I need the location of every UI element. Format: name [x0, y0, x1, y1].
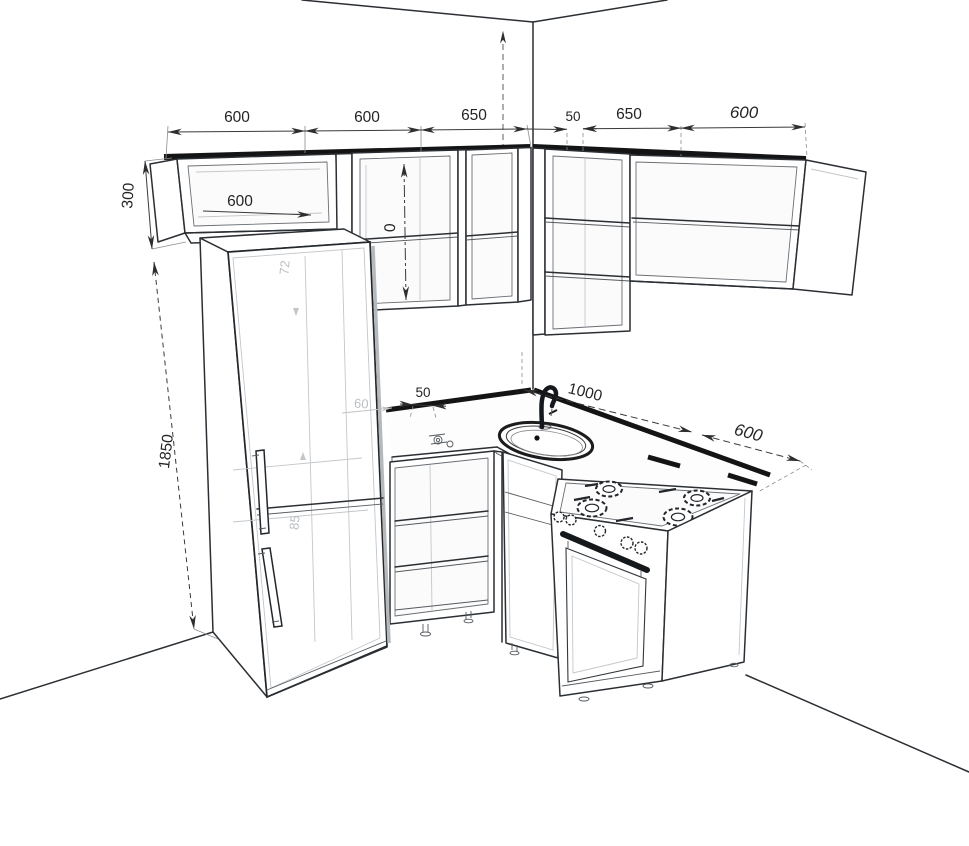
corner-filler-50: [533, 148, 545, 335]
floor-edge-left: [0, 632, 213, 699]
dim-650-2: 650: [616, 106, 642, 123]
hidden-dim-label-600-fragment: 60: [354, 396, 369, 412]
dim-600-stove: 600: [732, 420, 765, 446]
wall-cabinet-650-corner-open: [466, 148, 531, 306]
dim-300: 300: [119, 182, 138, 209]
floor-edge-right: [746, 675, 969, 772]
kitchen-technical-drawing: 72 60 85 600 600: [0, 0, 969, 846]
dim-600-right: 600: [730, 103, 759, 122]
gas-stove: [551, 457, 757, 701]
wall-cabinet-650-open-right: [545, 149, 630, 335]
burner: [684, 491, 710, 506]
dim-600-2: 600: [354, 109, 380, 126]
hidden-dim-label-720-fragment: 72: [276, 260, 292, 276]
upper-cabinets-right: [533, 147, 866, 335]
base-cabinet-open-left: [390, 451, 502, 642]
adjustable-foot: [421, 624, 431, 636]
burner: [578, 500, 607, 517]
dim-1850: 1850: [156, 433, 177, 470]
dim-600-inner: 600: [227, 193, 253, 210]
dim-650-1: 650: [461, 107, 487, 124]
ceiling-edge-right: [533, 0, 667, 22]
refrigerator: 72 60 85: [200, 229, 392, 697]
dim-600-1: 600: [224, 109, 250, 126]
hidden-dim-label-850-fragment: 85: [286, 515, 302, 531]
ceiling-edge-left: [302, 0, 533, 22]
dim-partial-0: 0: [382, 223, 399, 233]
burner: [596, 482, 622, 497]
wall-shelf-600-open: [630, 155, 866, 295]
dim-50-top: 50: [565, 109, 580, 124]
sink-drain: [534, 435, 539, 440]
cabinet-divider-stile: [458, 150, 466, 306]
dim-50-counter: 50: [415, 385, 430, 400]
drawing-canvas: 72 60 85 600 600: [0, 0, 969, 846]
